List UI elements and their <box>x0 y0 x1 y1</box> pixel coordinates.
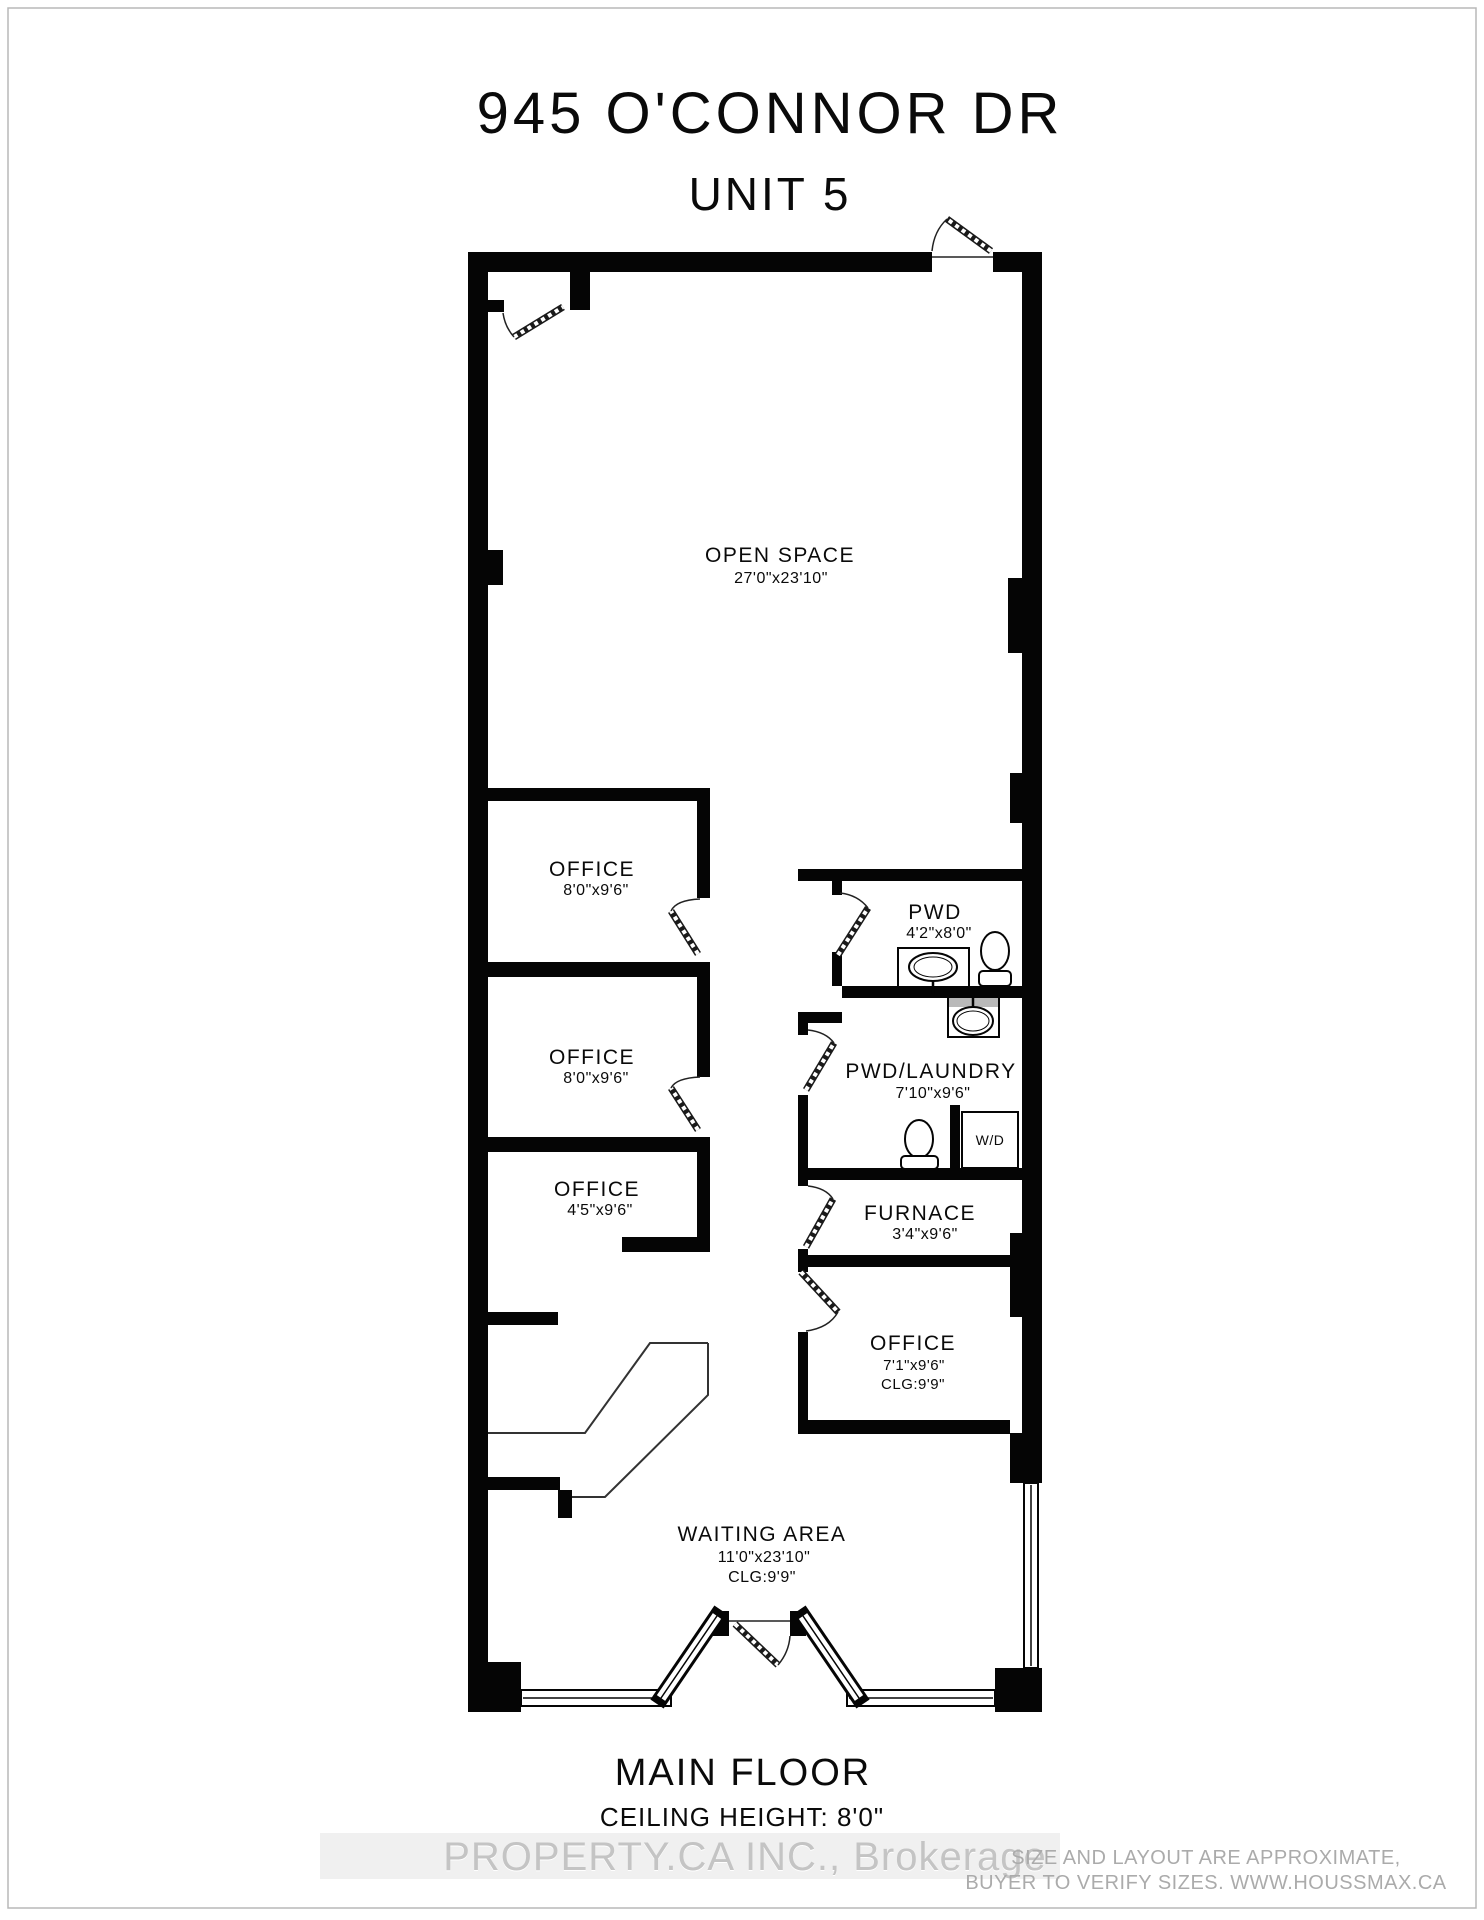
room-dims: 27'0"x23'10" <box>734 570 828 587</box>
door-office1 <box>671 899 700 954</box>
wall-corner-bl <box>468 1662 521 1712</box>
room-open-space: OPEN SPACE 27'0"x23'10" <box>705 544 855 587</box>
room-label: WAITING AREA <box>678 1523 847 1546</box>
wall-office1-office2 <box>488 962 710 977</box>
room-dims: 11'0"x23'10" <box>718 1549 811 1566</box>
unit-subtitle: UNIT 5 <box>689 168 852 220</box>
door-arc <box>671 899 700 911</box>
wall-pwd-left <box>832 952 842 986</box>
ceiling-height: CEILING HEIGHT: 8'0" <box>600 1802 884 1832</box>
page-title: 945 O'CONNOR DR <box>477 81 1064 146</box>
toilet-icon <box>905 1120 933 1158</box>
toilet-tank <box>979 971 1011 986</box>
wall-right <box>1022 252 1042 1433</box>
door-arc <box>778 1636 790 1665</box>
pilaster <box>1010 1233 1022 1317</box>
wall-nook-stub <box>570 270 590 310</box>
wall-office3-bottom <box>622 1237 710 1252</box>
room-dims: 8'0"x9'6" <box>563 1070 629 1087</box>
room-dims: 4'2"x8'0" <box>906 925 972 942</box>
door-arc <box>806 1312 838 1331</box>
room-dims: 7'1"x9'6" <box>883 1357 945 1374</box>
wall-office4-left-b <box>798 1332 808 1420</box>
door-arc <box>808 1186 833 1199</box>
door-top-left-nook <box>503 307 563 337</box>
wall-office1-top <box>488 788 708 801</box>
doors <box>503 219 993 1665</box>
door-arc <box>808 1030 834 1043</box>
door-office4 <box>801 1272 838 1331</box>
wall-office2-office3 <box>488 1137 710 1152</box>
room-label: PWD/LAUNDRY <box>845 1060 1016 1083</box>
room-office4: OFFICE 7'1"x9'6" CLG:9'9" <box>870 1332 956 1393</box>
wall-stub-2 <box>488 1477 560 1490</box>
wall-right-chunk <box>1010 1433 1042 1483</box>
floor-plan-canvas: W/D 945 O'CONNOR DR UNIT 5 OPEN SPACE 27… <box>0 0 1484 1920</box>
wall-furnace-left-a <box>798 1180 808 1186</box>
door-arc <box>503 313 514 337</box>
room-ceiling: CLG:9'9" <box>881 1376 945 1393</box>
wall-furnace-left-b <box>798 1249 808 1255</box>
room-dims: 3'4"x9'6" <box>892 1226 958 1243</box>
floor-plan-page: W/D 945 O'CONNOR DR UNIT 5 OPEN SPACE 27… <box>0 0 1484 1920</box>
wall-corner-br <box>995 1668 1042 1712</box>
wall-office4-bottom <box>798 1420 1010 1434</box>
room-waiting-area: WAITING AREA 11'0"x23'10" CLG:9'9" <box>678 1523 847 1586</box>
disclaimer-line-1: SIZE AND LAYOUT ARE APPROXIMATE, <box>1011 1847 1400 1869</box>
wall-laundry-left-b <box>798 1095 808 1168</box>
brokerage-watermark: PROPERTY.CA INC., Brokerage <box>443 1835 1047 1879</box>
wall-stub-1 <box>488 1312 558 1325</box>
wall-pwd-top <box>798 869 1022 881</box>
room-ceiling: CLG:9'9" <box>728 1569 796 1586</box>
room-label: OFFICE <box>554 1178 640 1201</box>
door-arc <box>840 893 868 908</box>
bay-window-left-mullion <box>659 1613 719 1701</box>
door-main-entrance <box>729 1621 790 1665</box>
angled-partition <box>488 1343 708 1497</box>
partition-upper-line <box>488 1343 708 1433</box>
page-border <box>8 8 1476 1908</box>
floor-name: MAIN FLOOR <box>615 1752 871 1794</box>
wall-jog <box>798 1012 842 1023</box>
room-dims: 7'10"x9'6" <box>896 1085 971 1102</box>
pilaster <box>1010 773 1022 823</box>
room-pwd-laundry: PWD/LAUNDRY 7'10"x9'6" <box>845 1060 1016 1102</box>
wall-office2-right <box>697 962 710 1077</box>
door-office2 <box>671 1077 700 1130</box>
labels: 945 O'CONNOR DR UNIT 5 OPEN SPACE 27'0"x… <box>477 81 1064 1832</box>
wall-nook-jamb <box>488 300 504 312</box>
room-label: OFFICE <box>549 1046 635 1069</box>
room-furnace: FURNACE 3'4"x9'6" <box>864 1202 976 1243</box>
room-office3: OFFICE 4'5"x9'6" <box>554 1178 640 1219</box>
windows <box>521 1483 1038 1706</box>
room-office2: OFFICE 8'0"x9'6" <box>549 1046 635 1087</box>
wall-wd-stub <box>950 1105 960 1168</box>
footer-marks: PROPERTY.CA INC., Brokerage SIZE AND LAY… <box>320 1833 1447 1894</box>
room-office1: OFFICE 8'0"x9'6" <box>549 858 635 899</box>
door-pwd <box>838 893 868 955</box>
door-arc <box>671 1077 700 1088</box>
door-arc <box>932 219 947 251</box>
room-label: OFFICE <box>870 1332 956 1355</box>
wall-office1-right <box>697 788 710 898</box>
room-pwd: PWD 4'2"x8'0" <box>906 901 972 942</box>
door-top-right <box>932 219 993 257</box>
door-furnace <box>806 1186 833 1247</box>
toilet-tank <box>901 1156 938 1169</box>
wall-stub-2-leg <box>558 1490 572 1518</box>
pilaster <box>1008 578 1022 653</box>
wall-top-left <box>488 252 932 272</box>
pilaster <box>488 550 503 585</box>
wall-furnace-bottom <box>798 1255 1022 1267</box>
room-dims: 4'5"x9'6" <box>567 1202 633 1219</box>
room-label: FURNACE <box>864 1202 976 1225</box>
door-pwd-laundry <box>806 1030 834 1090</box>
washer-dryer-label: W/D <box>976 1132 1005 1148</box>
toilet-icon <box>981 932 1009 970</box>
wall-left <box>468 252 488 1712</box>
wall-laundry-left-a <box>798 1023 808 1035</box>
room-dims: 8'0"x9'6" <box>563 882 629 899</box>
bay-window-right-mullion <box>801 1613 861 1701</box>
room-label: PWD <box>908 901 962 924</box>
room-label: OPEN SPACE <box>705 544 855 567</box>
partition-lower-line <box>572 1343 708 1497</box>
room-label: OFFICE <box>549 858 635 881</box>
disclaimer-line-2: BUYER TO VERIFY SIZES. WWW.HOUSSMAX.CA <box>965 1872 1446 1894</box>
